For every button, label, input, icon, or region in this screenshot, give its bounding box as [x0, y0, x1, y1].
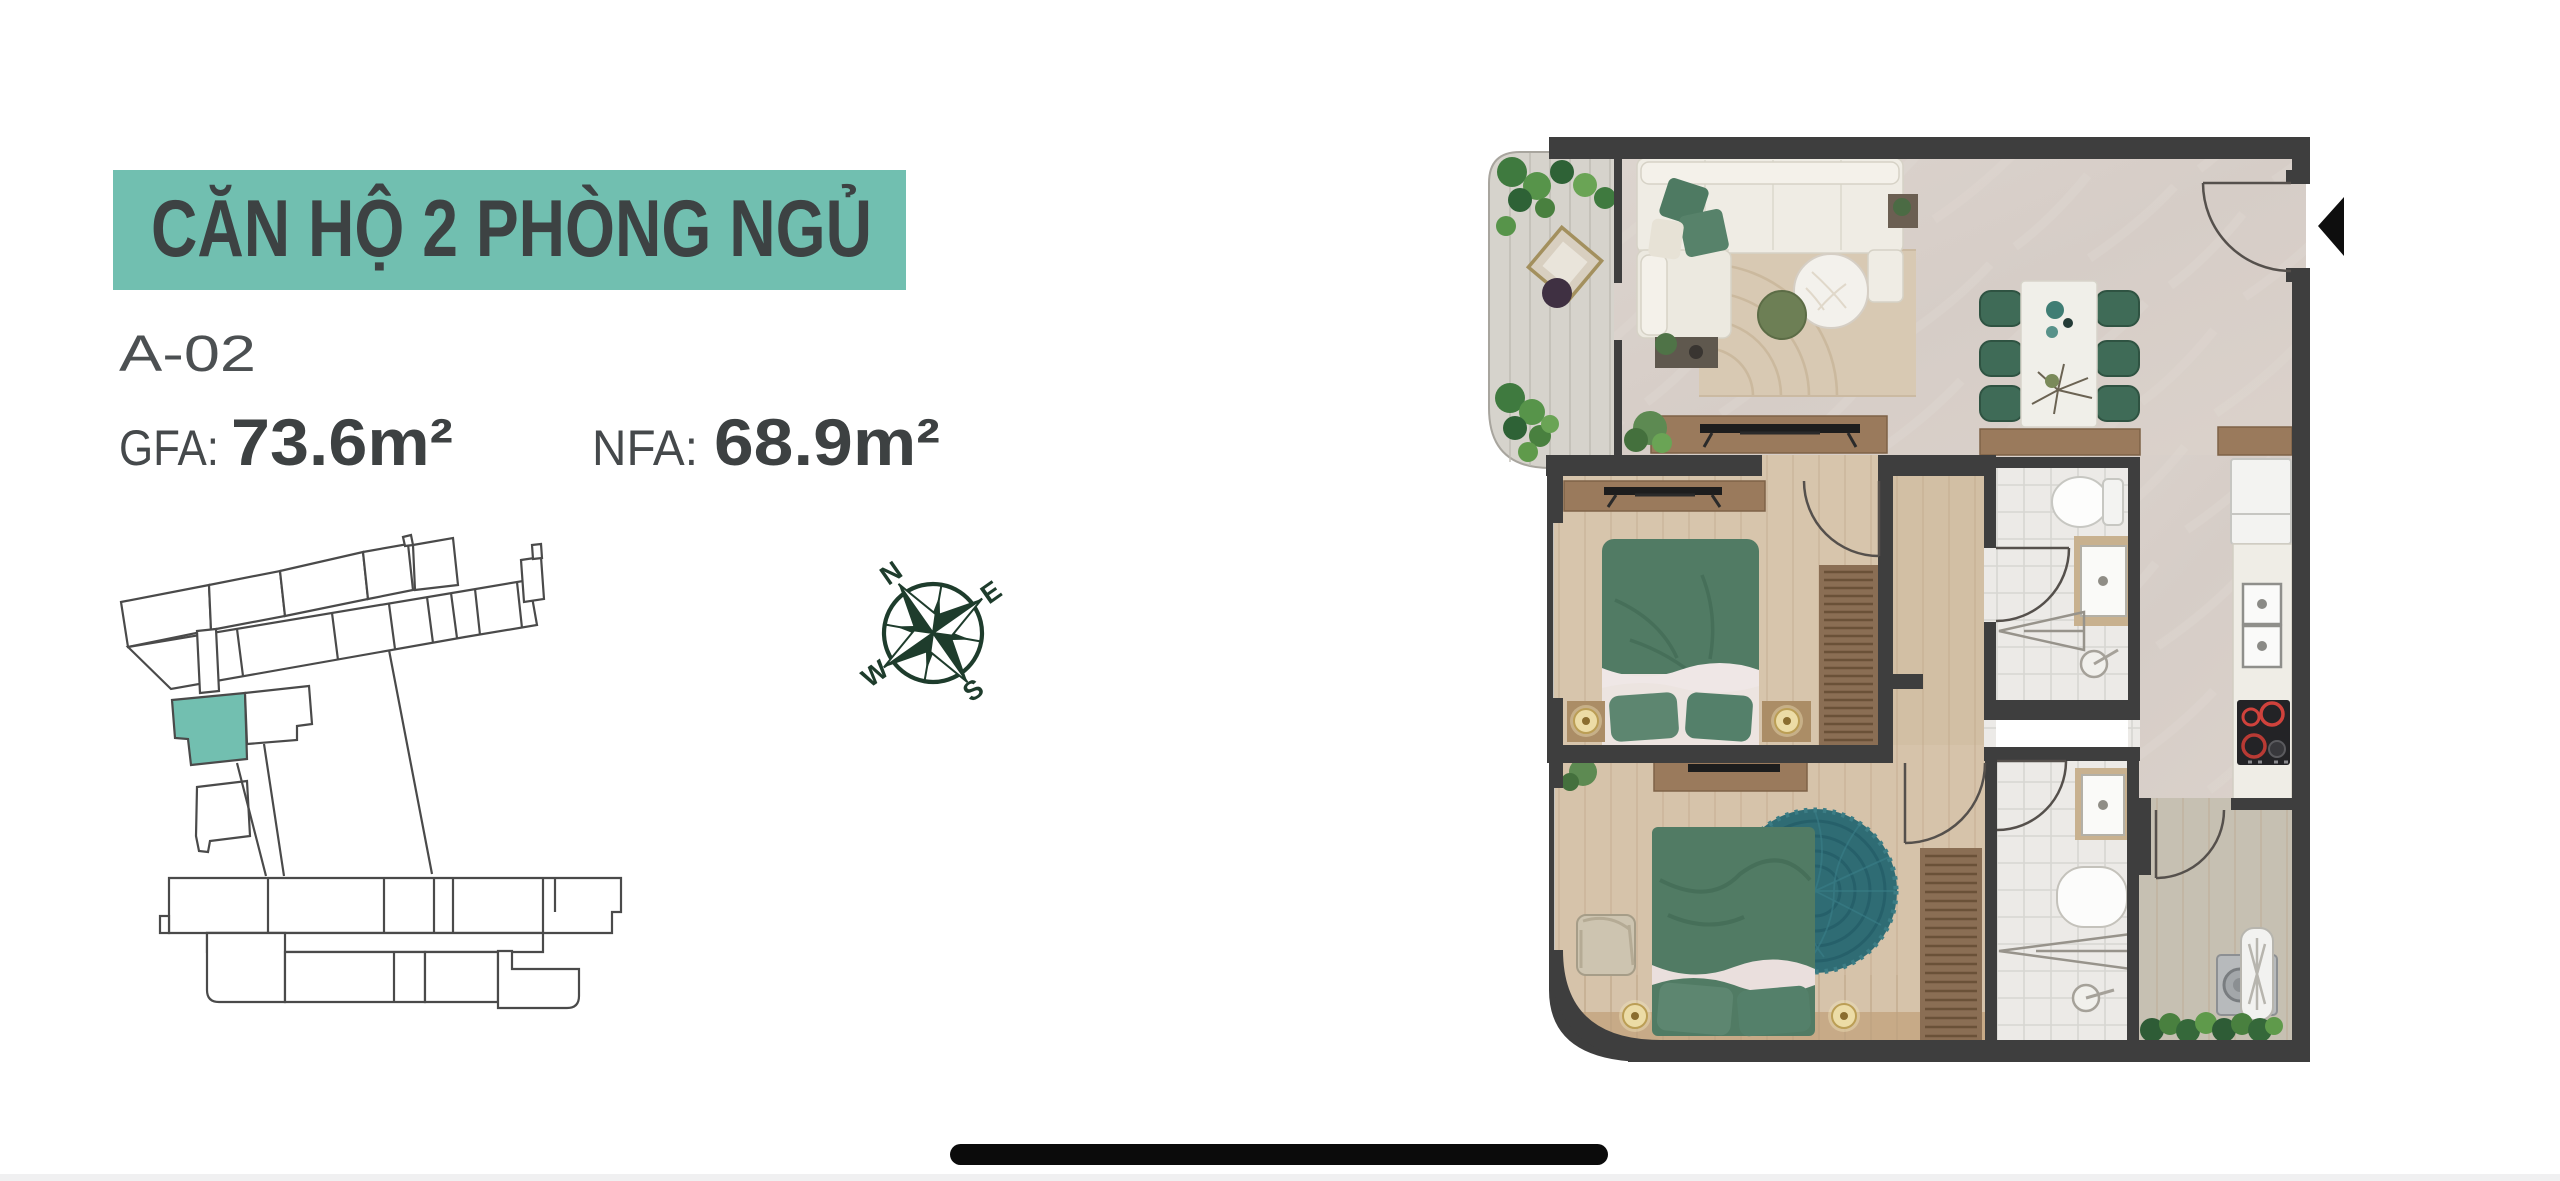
svg-text:W: W: [856, 654, 895, 693]
svg-text:E: E: [975, 575, 1007, 610]
svg-text:CĂN HỘ 2 PHÒNG NGỦ: CĂN HỘ 2 PHÒNG NGỦ: [151, 183, 872, 274]
svg-text:68.9m²: 68.9m²: [714, 405, 940, 479]
svg-text:NFA:: NFA:: [592, 420, 698, 476]
svg-text:GFA:: GFA:: [119, 420, 219, 476]
svg-text:N: N: [875, 555, 908, 591]
svg-text:73.6m²: 73.6m²: [231, 405, 453, 479]
svg-text:A-02: A-02: [119, 325, 256, 382]
